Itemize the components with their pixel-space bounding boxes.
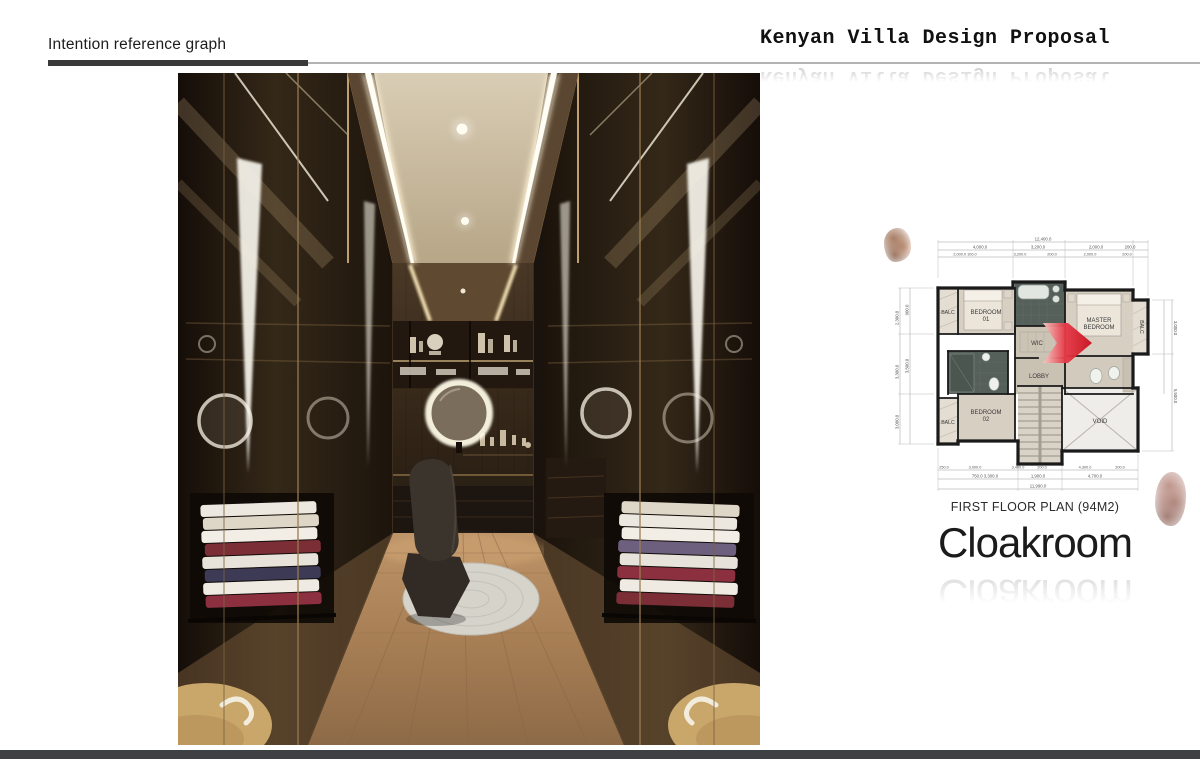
svg-text:3,300.0: 3,300.0 (895, 364, 900, 379)
svg-text:01: 01 (983, 317, 990, 323)
room-label-lobby: LOBBY (1029, 374, 1049, 380)
svg-text:BEDROOM: BEDROOM (1083, 325, 1114, 331)
svg-text:4,000.0: 4,000.0 (973, 245, 988, 250)
svg-text:900.0: 900.0 (905, 304, 910, 315)
svg-text:4,300.0: 4,300.0 (1079, 466, 1092, 470)
svg-text:3,500.0: 3,500.0 (905, 358, 910, 373)
svg-text:200.0: 200.0 (1122, 253, 1132, 257)
room-label-bedroom1: BEDROOM (970, 310, 1001, 316)
page-title: Kenyan Villa Design Proposal (705, 27, 1165, 50)
svg-text:5,500.0: 5,500.0 (1173, 389, 1178, 404)
svg-text:3,000.0: 3,000.0 (895, 414, 900, 429)
room-label-bedroom2: BEDROOM (970, 410, 1001, 416)
paint-splatter-top (884, 228, 911, 262)
room-label-master: MASTER (1086, 318, 1112, 324)
paint-splatter-bottom (1155, 472, 1186, 526)
svg-text:250.0: 250.0 (939, 466, 949, 470)
svg-text:3,400.0: 3,400.0 (1012, 466, 1025, 470)
svg-text:2,000.0: 2,000.0 (1084, 253, 1097, 257)
svg-text:3,000.0: 3,000.0 (1173, 321, 1178, 336)
svg-text:3,000.0: 3,000.0 (969, 466, 982, 470)
svg-text:200.0: 200.0 (1037, 466, 1047, 470)
svg-text:2,000.0 100.0: 2,000.0 100.0 (953, 253, 976, 257)
section-label: Intention reference graph (48, 36, 226, 54)
room-label-void: VOID (1093, 419, 1108, 425)
svg-text:2,000.0: 2,000.0 (1089, 245, 1104, 250)
plan-caption: FIRST FLOOR PLAN (94M2) (880, 500, 1190, 514)
svg-text:1,900.0: 1,900.0 (1031, 474, 1046, 479)
drawer-chest-right (546, 458, 606, 538)
section-underline-bar (48, 60, 308, 66)
svg-text:200.0: 200.0 (1115, 466, 1125, 470)
svg-text:3,200.0: 3,200.0 (1031, 245, 1046, 250)
footer-bar (0, 750, 1200, 759)
svg-text:200.0: 200.0 (1125, 245, 1136, 250)
room-label-balc-bottom: BALC (941, 420, 955, 426)
svg-text:200.0: 200.0 (1047, 253, 1057, 257)
svg-text:4,700.0: 4,700.0 (1088, 474, 1103, 479)
towel-stack-left (188, 493, 336, 623)
towel-stack-right (602, 493, 756, 623)
inner-downlight (461, 289, 466, 294)
slide-page: Intention reference graph Kenyan Villa D… (0, 0, 1200, 760)
svg-text:11,990.0: 11,990.0 (1030, 484, 1047, 489)
room-label-balc-right: BALC (1138, 320, 1144, 334)
room-label-balc-top: BALC (941, 310, 955, 316)
shelf-clock (427, 334, 443, 355)
svg-text:12,400.0: 12,400.0 (1035, 237, 1052, 242)
room-title-reflection: Cloakroom (880, 570, 1190, 618)
room-label-wic: WIC (1031, 341, 1043, 347)
display-cabinet (393, 321, 533, 389)
svg-text:2,300.0: 2,300.0 (895, 310, 900, 325)
svg-text:3,200.0: 3,200.0 (1014, 253, 1027, 257)
svg-text:02: 02 (983, 417, 990, 423)
svg-text:750.0 3,300.0: 750.0 3,300.0 (972, 474, 999, 479)
cloakroom-render-image (178, 73, 760, 745)
room-title: Cloakroom (880, 519, 1190, 567)
page-title-reflection: Kenyan Villa Design Proposal (705, 65, 1165, 88)
first-floor-plan: BALC BEDROOM 01 MASTER BEDROOM BALC WIC … (880, 226, 1190, 498)
